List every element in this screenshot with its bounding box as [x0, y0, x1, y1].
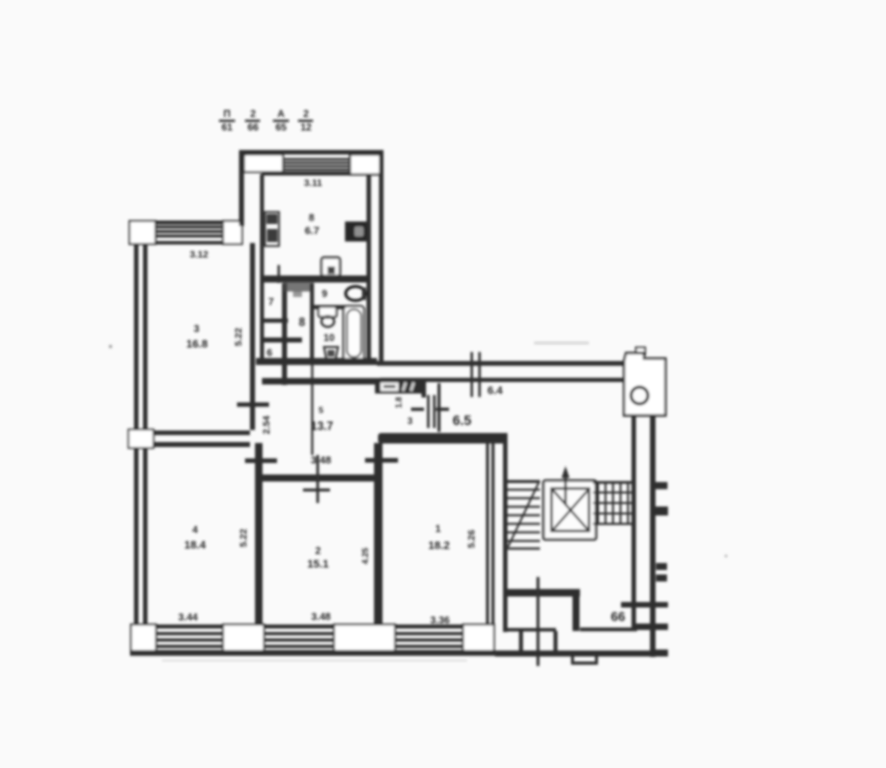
svg-text:6.7: 6.7: [305, 225, 320, 237]
svg-text:18.2: 18.2: [428, 540, 449, 552]
svg-text:1.8: 1.8: [395, 396, 404, 408]
svg-text:2: 2: [303, 109, 309, 120]
svg-text:3.11: 3.11: [304, 178, 323, 189]
svg-text:66: 66: [611, 609, 625, 624]
svg-text:5.26: 5.26: [467, 530, 478, 549]
svg-text:3: 3: [407, 416, 412, 426]
svg-text:5.22: 5.22: [234, 328, 245, 347]
svg-text:3.48: 3.48: [311, 455, 332, 467]
svg-text:8: 8: [299, 317, 306, 329]
svg-text:10: 10: [323, 333, 335, 344]
svg-text:2.54: 2.54: [262, 415, 273, 434]
svg-text:3.12: 3.12: [190, 250, 209, 261]
svg-text:А: А: [277, 109, 284, 120]
svg-text:3.44: 3.44: [178, 613, 198, 624]
svg-text:16.8: 16.8: [186, 339, 207, 351]
svg-text:5: 5: [319, 405, 324, 415]
svg-text:5.22: 5.22: [239, 529, 250, 548]
svg-text:6.4: 6.4: [487, 385, 503, 397]
svg-text:7: 7: [268, 297, 274, 308]
svg-text:18.4: 18.4: [184, 540, 206, 552]
svg-text:9: 9: [322, 289, 328, 300]
svg-text:2: 2: [315, 546, 321, 557]
svg-text:66: 66: [247, 123, 259, 134]
svg-text:3.48: 3.48: [311, 612, 331, 623]
svg-text:3: 3: [194, 324, 200, 335]
svg-text:4: 4: [192, 525, 198, 536]
svg-text:12: 12: [300, 123, 312, 134]
svg-text:13.7: 13.7: [311, 421, 333, 433]
svg-text:П: П: [223, 109, 230, 120]
svg-text:6.5: 6.5: [453, 413, 472, 428]
svg-text:1: 1: [435, 524, 441, 535]
svg-text:4.25: 4.25: [360, 547, 370, 564]
svg-text:2: 2: [250, 109, 256, 120]
svg-text:61: 61: [221, 123, 233, 134]
svg-text:8: 8: [309, 213, 315, 224]
svg-text:65: 65: [275, 123, 287, 134]
svg-text:6: 6: [267, 348, 273, 359]
svg-text:15.1: 15.1: [307, 559, 328, 571]
